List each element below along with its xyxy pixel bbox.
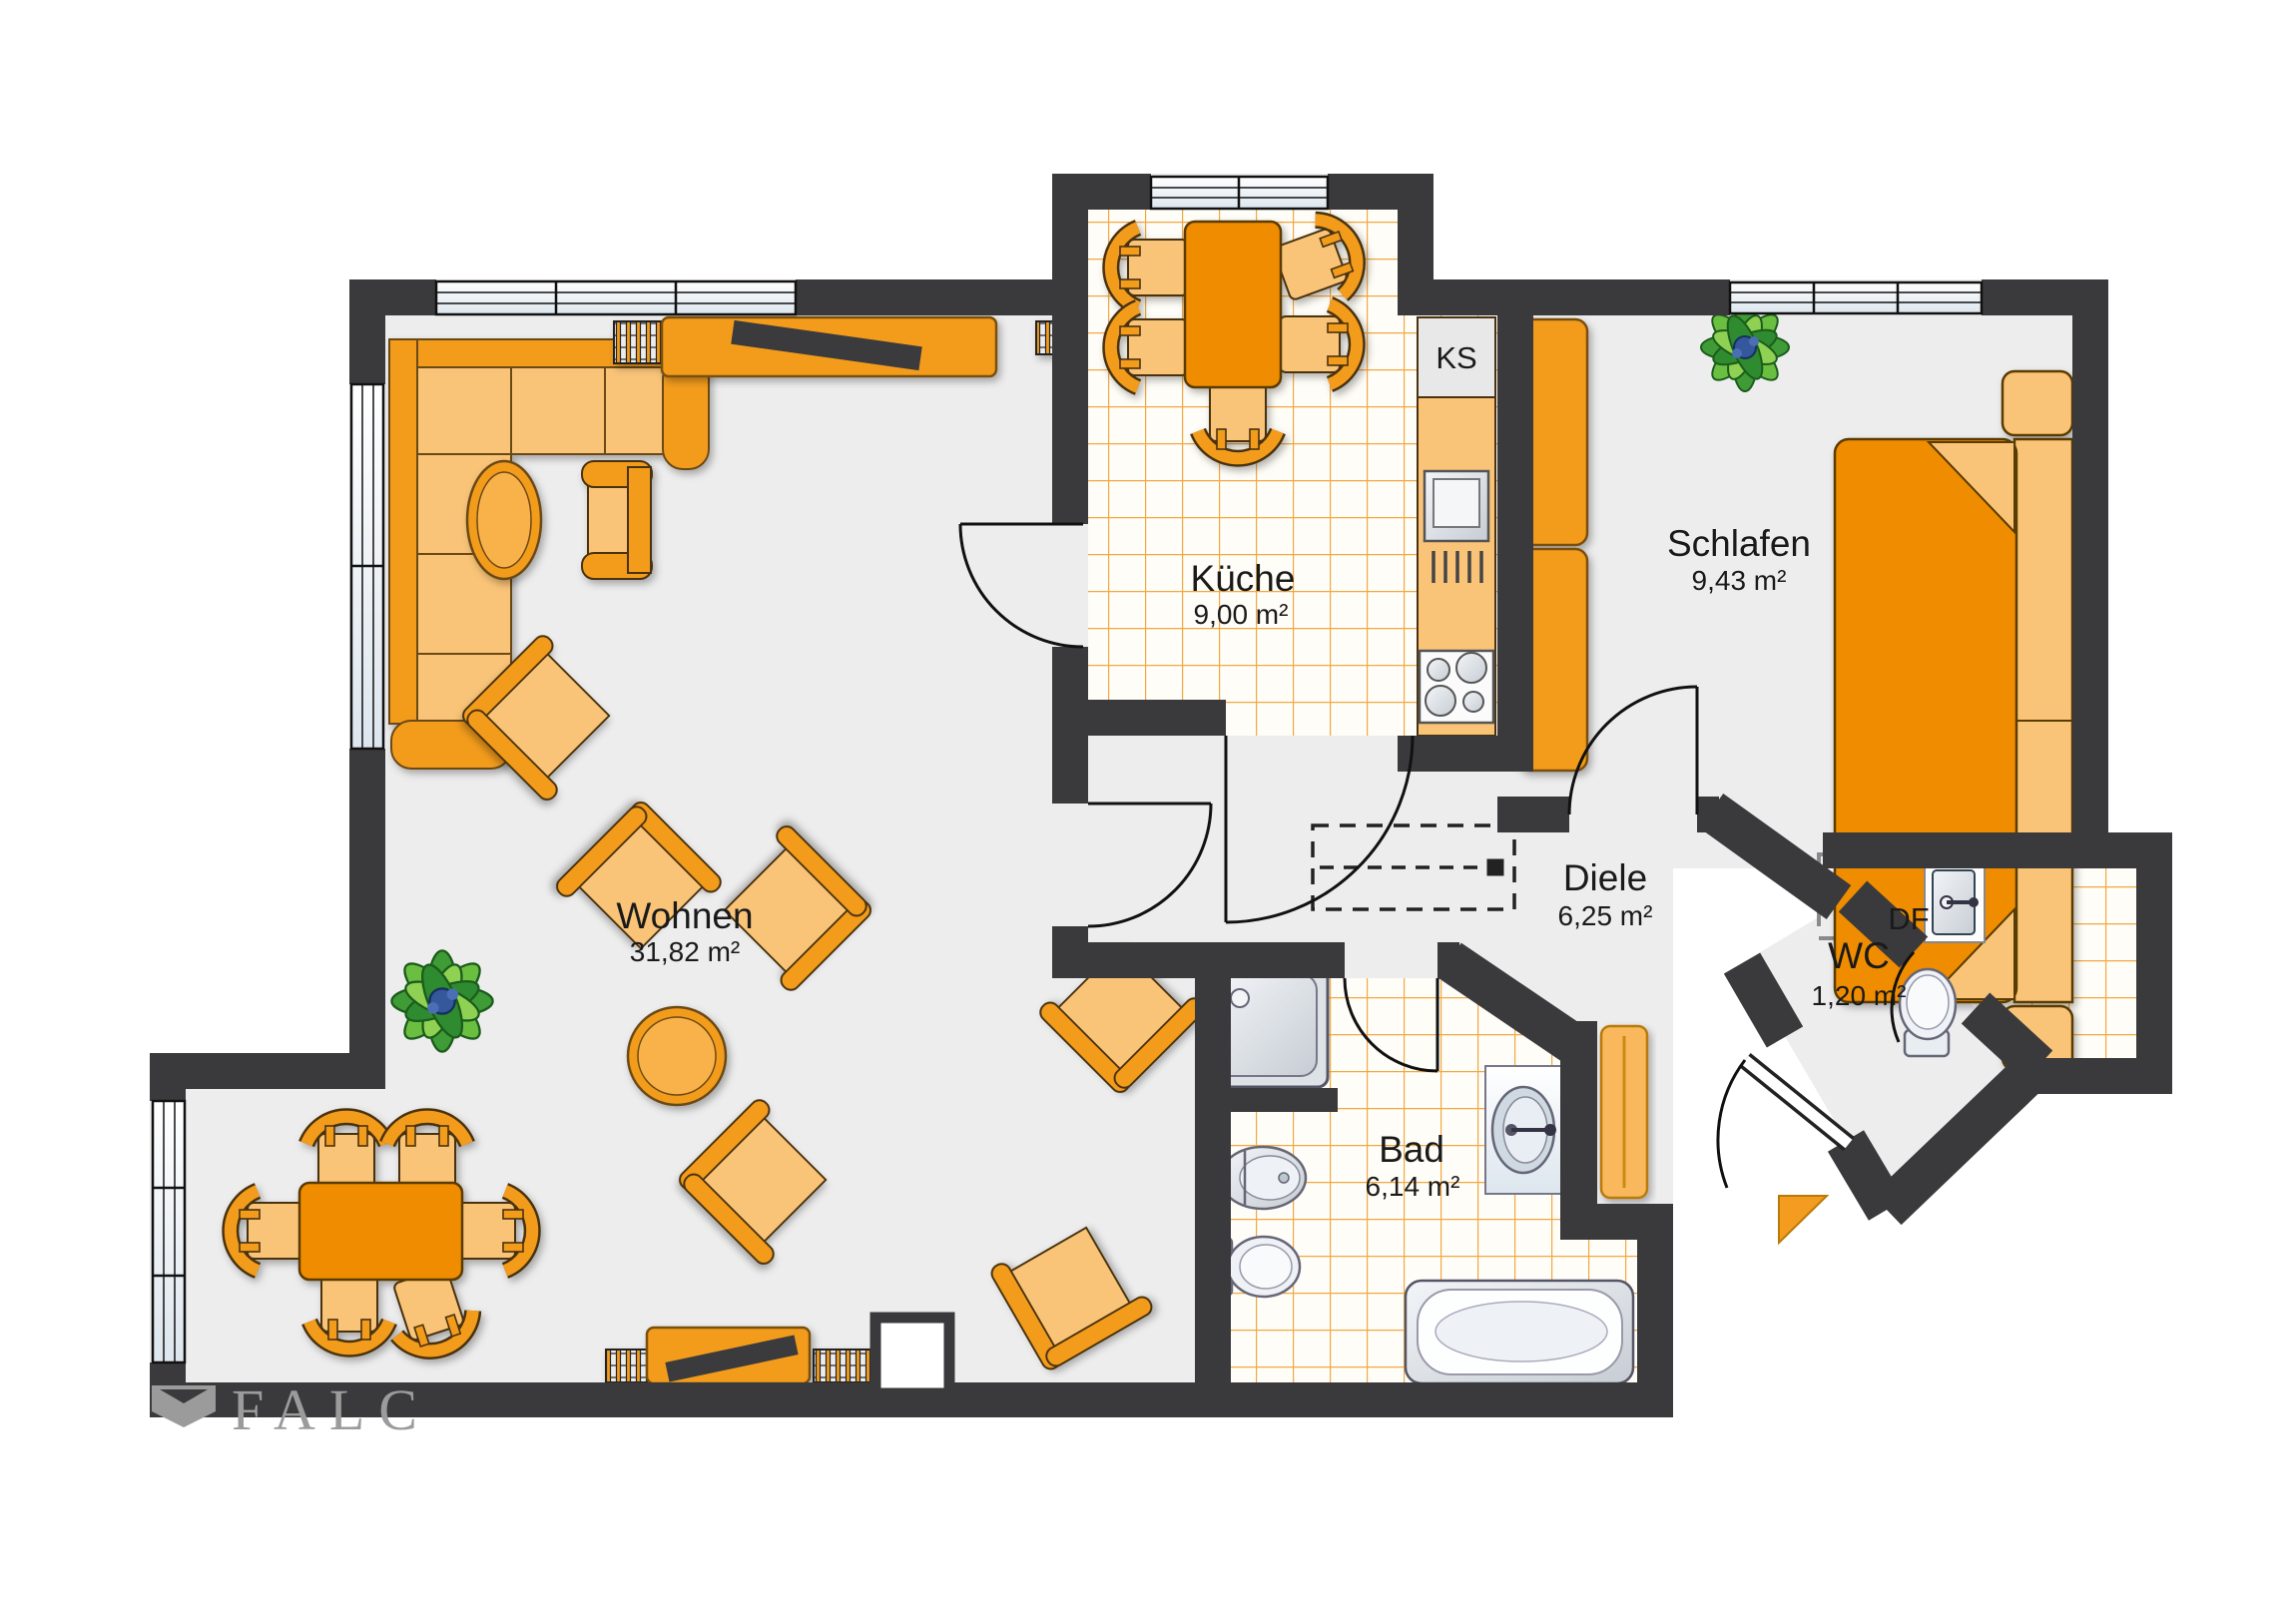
floor-plan-page: Wohnen 31,82 m² Küche 9,00 m² Schlafen 9… bbox=[0, 0, 2296, 1623]
svg-text:Wohnen: Wohnen bbox=[616, 895, 753, 936]
armchair bbox=[582, 461, 652, 579]
shelf-slats bbox=[814, 1350, 871, 1382]
window bbox=[153, 1101, 185, 1362]
washbasin bbox=[1485, 1066, 1561, 1194]
round-coffee-table bbox=[628, 1007, 726, 1105]
bathtub bbox=[1406, 1281, 1633, 1383]
svg-text:Bad: Bad bbox=[1379, 1129, 1444, 1170]
room-label-kueche: Küche 9,00 m² bbox=[1191, 558, 1296, 630]
window bbox=[1151, 177, 1328, 209]
svg-text:Küche: Küche bbox=[1191, 558, 1296, 599]
svg-text:Schlafen: Schlafen bbox=[1667, 523, 1811, 564]
washbasin bbox=[1925, 862, 1985, 942]
svg-text:6,25 m²: 6,25 m² bbox=[1558, 900, 1653, 931]
nightstand bbox=[2003, 371, 2072, 435]
plant-icon bbox=[1701, 303, 1789, 391]
roof-window-label: DF bbox=[1888, 901, 1929, 936]
wall-niche bbox=[875, 1318, 949, 1393]
svg-text:31,82 m²: 31,82 m² bbox=[630, 936, 741, 967]
svg-text:FALC: FALC bbox=[232, 1377, 431, 1442]
floor-plan-canvas: Wohnen 31,82 m² Küche 9,00 m² Schlafen 9… bbox=[0, 0, 2296, 1623]
plant-icon bbox=[391, 950, 492, 1051]
fridge-label: KS bbox=[1435, 340, 1476, 375]
entrance-marker bbox=[1779, 1196, 1827, 1243]
falc-watermark: FALC bbox=[152, 1377, 431, 1442]
window bbox=[351, 384, 383, 749]
svg-text:Diele: Diele bbox=[1563, 857, 1647, 898]
kitchen-table bbox=[1185, 222, 1281, 387]
oval-side-table bbox=[467, 461, 541, 579]
stove bbox=[1420, 651, 1493, 723]
shelf-slats bbox=[614, 321, 662, 363]
room-label-diele: Diele 6,25 m² bbox=[1558, 857, 1653, 931]
dining-table bbox=[299, 1183, 462, 1280]
svg-text:1,20 m²: 1,20 m² bbox=[1812, 980, 1907, 1011]
svg-text:6,14 m²: 6,14 m² bbox=[1366, 1171, 1460, 1202]
window bbox=[1730, 282, 1982, 313]
shelf-slats bbox=[606, 1350, 648, 1382]
radiator bbox=[1601, 1026, 1647, 1198]
kitchen-counter bbox=[1418, 317, 1495, 736]
bidet bbox=[1220, 1147, 1306, 1209]
svg-text:9,00 m²: 9,00 m² bbox=[1194, 599, 1289, 630]
svg-text:WC: WC bbox=[1828, 935, 1890, 976]
window bbox=[436, 281, 796, 314]
toilet bbox=[1900, 969, 1956, 1056]
svg-text:9,43 m²: 9,43 m² bbox=[1692, 565, 1787, 596]
room-label-wohnen: Wohnen 31,82 m² bbox=[616, 895, 753, 967]
